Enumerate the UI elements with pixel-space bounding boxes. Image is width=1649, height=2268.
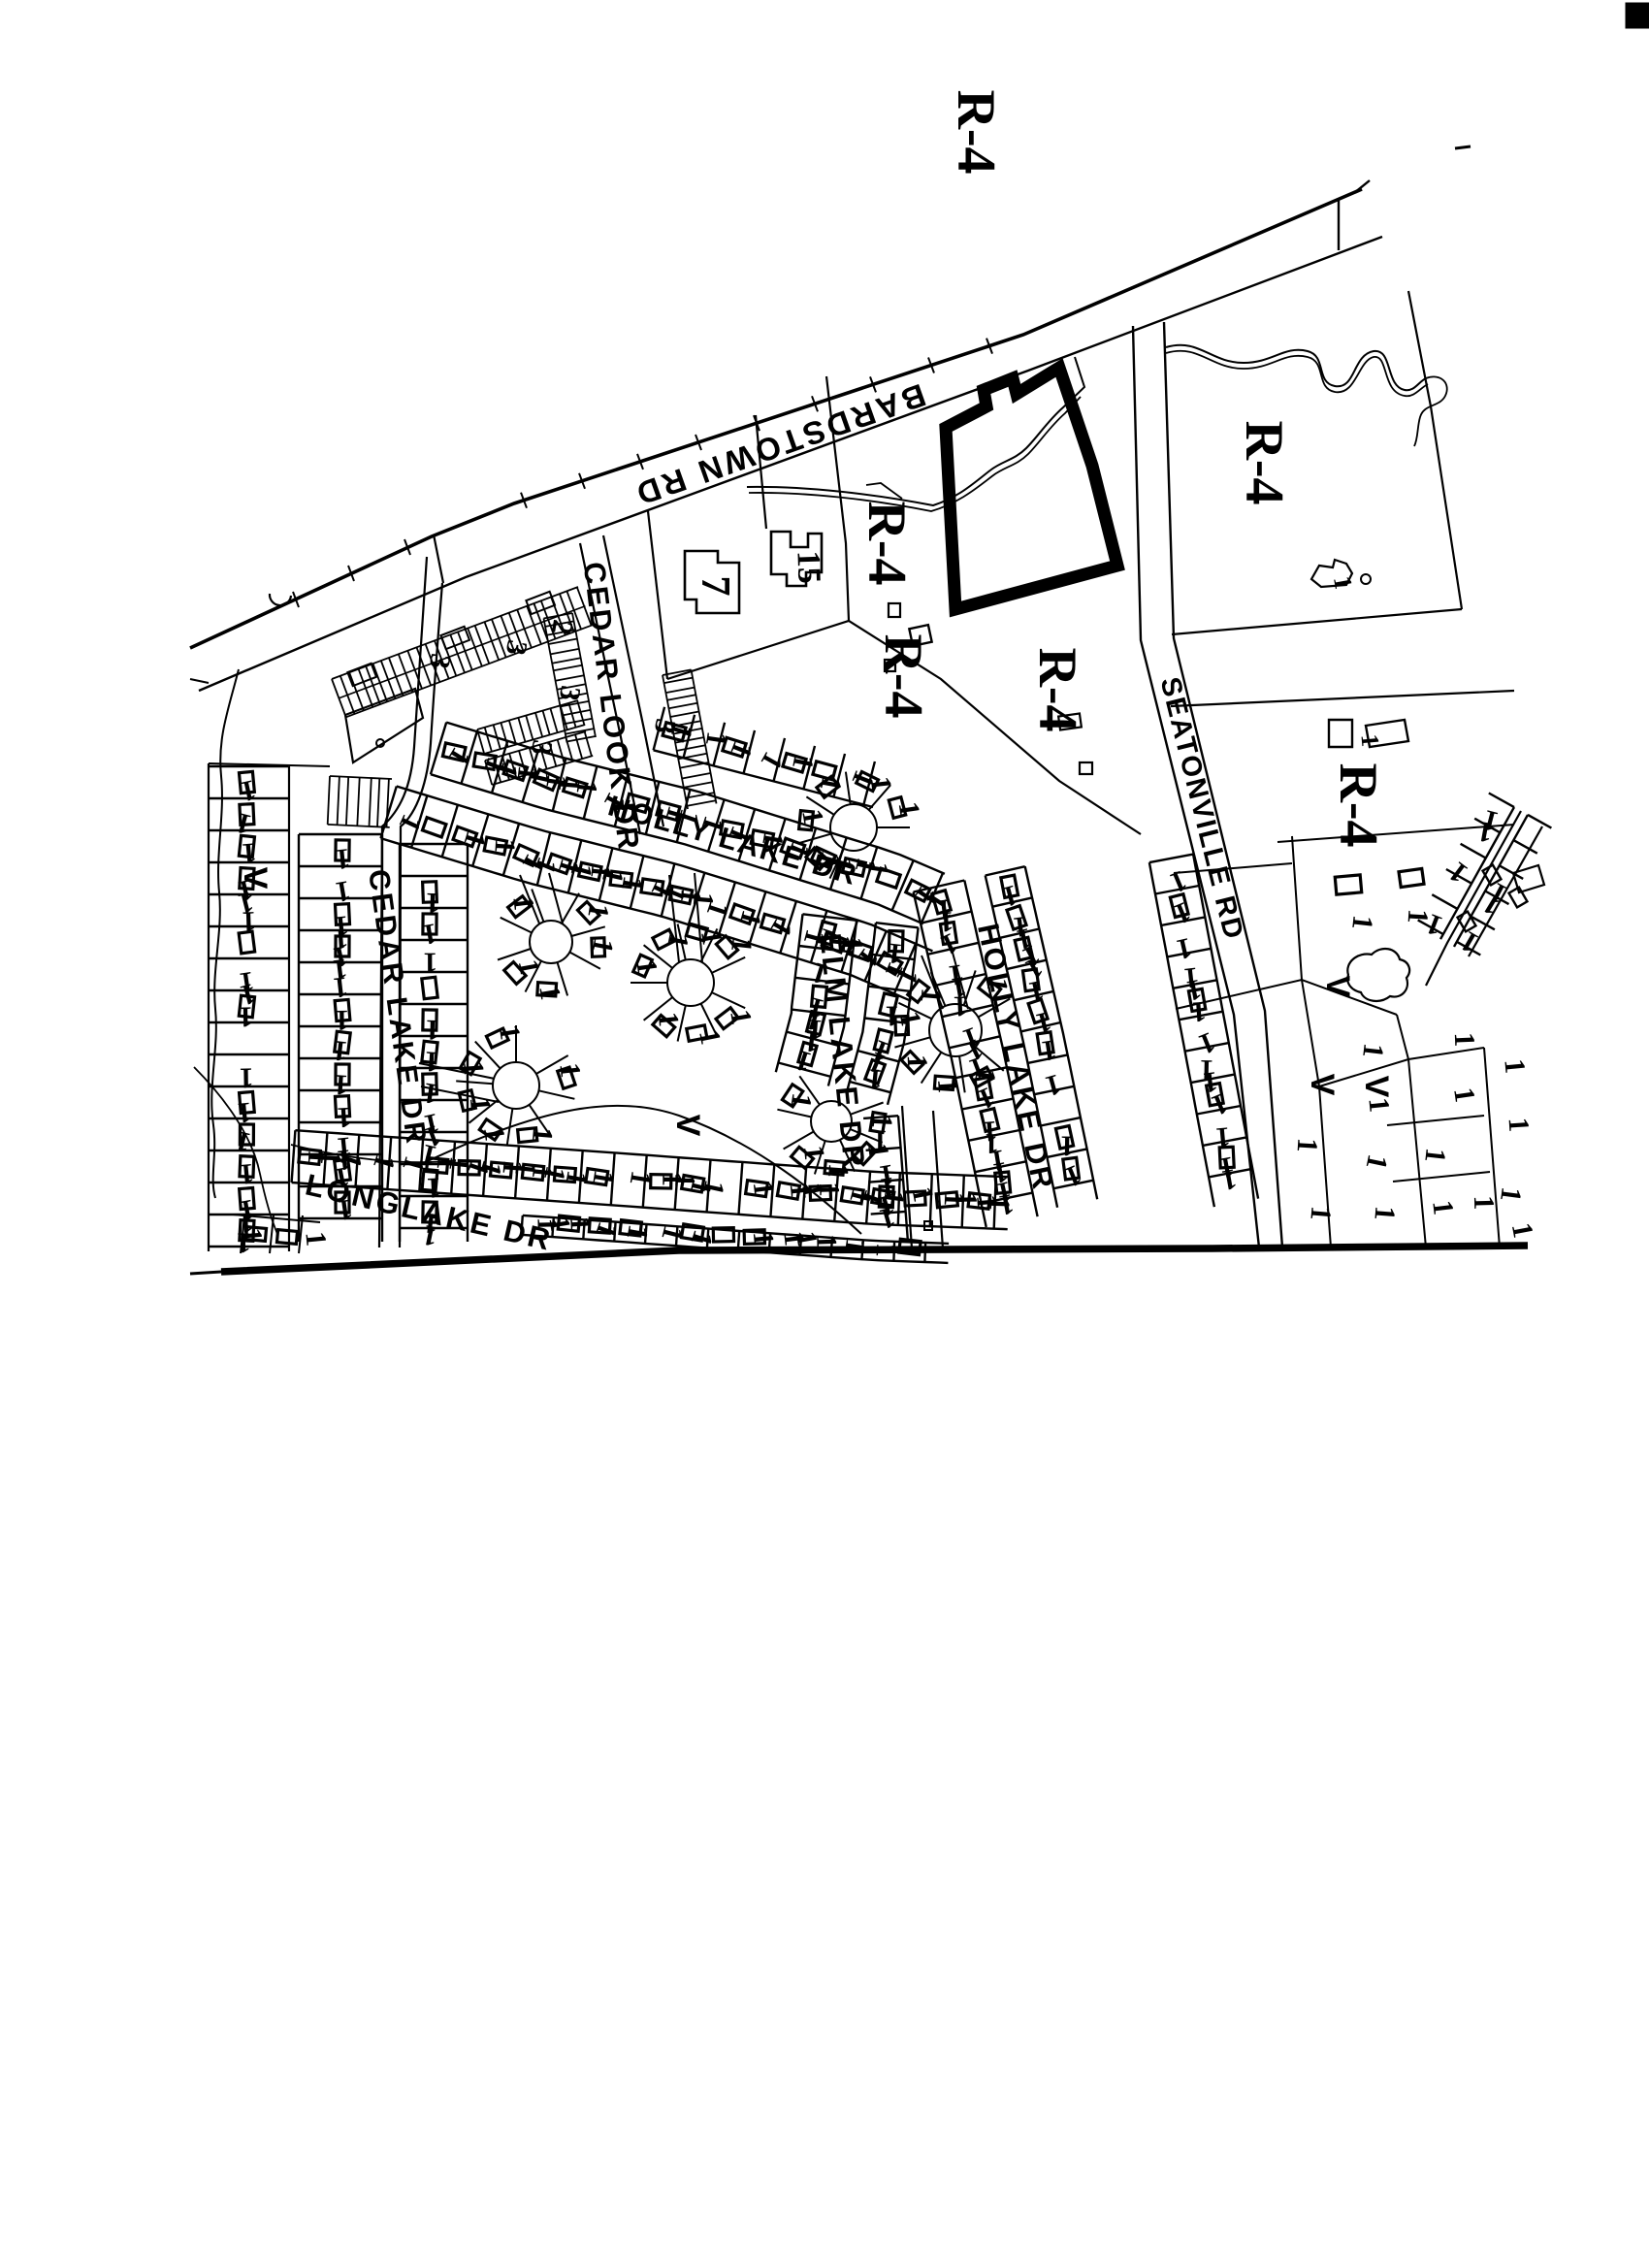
svg-text:1: 1 — [1368, 1205, 1401, 1221]
svg-text:1: 1 — [526, 1126, 559, 1144]
svg-text:CEDAR LAKE DR: CEDAR LAKE DR — [362, 867, 433, 1148]
svg-text:1: 1 — [630, 957, 663, 976]
svg-text:1: 1 — [652, 1011, 685, 1028]
svg-text:1: 1 — [1355, 733, 1384, 748]
svg-text:1: 1 — [693, 1026, 727, 1047]
svg-text:1: 1 — [238, 773, 259, 807]
svg-text:1: 1 — [235, 1226, 268, 1244]
svg-text:V: V — [237, 867, 274, 890]
svg-text:1: 1 — [334, 842, 351, 875]
svg-text:1: 1 — [239, 1000, 254, 1032]
svg-text:1: 1 — [892, 799, 926, 819]
svg-text:R-4: R-4 — [873, 633, 933, 718]
svg-text:1: 1 — [724, 737, 759, 762]
svg-text:1: 1 — [1362, 1096, 1395, 1114]
svg-text:1: 1 — [241, 836, 258, 869]
svg-text:1: 1 — [747, 1180, 781, 1198]
svg-text:1: 1 — [914, 987, 947, 1004]
svg-text:1: 1 — [1291, 1137, 1324, 1153]
svg-text:1: 1 — [1356, 1042, 1390, 1060]
svg-text:1: 1 — [885, 1000, 899, 1032]
svg-text:1: 1 — [615, 874, 649, 893]
svg-text:R-4: R-4 — [1027, 647, 1087, 731]
svg-text:1: 1 — [953, 989, 968, 1022]
svg-text:1: 1 — [1360, 1151, 1394, 1172]
svg-text:1: 1 — [1498, 1057, 1531, 1075]
svg-text:1: 1 — [423, 947, 437, 979]
svg-text:V: V — [669, 1115, 706, 1137]
svg-text:1: 1 — [983, 1196, 1016, 1212]
svg-text:R-4: R-4 — [857, 501, 917, 585]
svg-text:1: 1 — [1174, 931, 1195, 966]
svg-text:1: 1 — [1402, 908, 1435, 924]
svg-text:7: 7 — [693, 576, 737, 597]
svg-text:1: 1 — [696, 1177, 730, 1198]
svg-text:1: 1 — [238, 1157, 255, 1190]
svg-text:1: 1 — [1448, 1032, 1481, 1048]
svg-text:15: 15 — [790, 550, 826, 584]
svg-text:1: 1 — [1505, 1220, 1539, 1241]
svg-text:1: 1 — [1219, 1162, 1240, 1196]
svg-text:1: 1 — [1442, 856, 1473, 890]
svg-text:3: 3 — [423, 651, 457, 671]
svg-text:1: 1 — [553, 1061, 586, 1080]
svg-text:3: 3 — [553, 683, 587, 703]
svg-text:1: 1 — [1304, 1205, 1337, 1222]
svg-text:1: 1 — [813, 1182, 845, 1197]
svg-text:1: 1 — [512, 956, 546, 977]
svg-text:1: 1 — [1328, 574, 1358, 592]
svg-text:1: 1 — [1042, 1068, 1064, 1103]
svg-text:1: 1 — [747, 1230, 780, 1247]
svg-text:1: 1 — [336, 1101, 352, 1134]
svg-text:1: 1 — [1345, 914, 1378, 931]
svg-text:1: 1 — [239, 1061, 254, 1093]
svg-text:1: 1 — [797, 1144, 830, 1161]
svg-text:1: 1 — [331, 1034, 349, 1067]
svg-text:1: 1 — [936, 926, 962, 961]
svg-text:1: 1 — [1447, 1085, 1481, 1105]
svg-text:1: 1 — [1426, 1199, 1460, 1217]
svg-text:1: 1 — [873, 1124, 888, 1156]
svg-text:1: 1 — [1418, 1147, 1451, 1165]
svg-text:R-4: R-4 — [1234, 420, 1294, 504]
svg-text:V: V — [1358, 1076, 1395, 1098]
svg-text:1: 1 — [1040, 1033, 1059, 1067]
svg-text:1: 1 — [299, 1230, 332, 1247]
svg-text:1: 1 — [725, 936, 758, 955]
svg-text:1: 1 — [864, 774, 898, 793]
svg-text:1: 1 — [901, 1054, 933, 1070]
svg-text:1: 1 — [1503, 1117, 1536, 1133]
svg-text:1: 1 — [1191, 995, 1208, 1028]
svg-text:1: 1 — [493, 1022, 527, 1042]
svg-text:1: 1 — [905, 1184, 939, 1205]
svg-text:R-4: R-4 — [946, 89, 1006, 174]
svg-text:1: 1 — [792, 1044, 815, 1079]
